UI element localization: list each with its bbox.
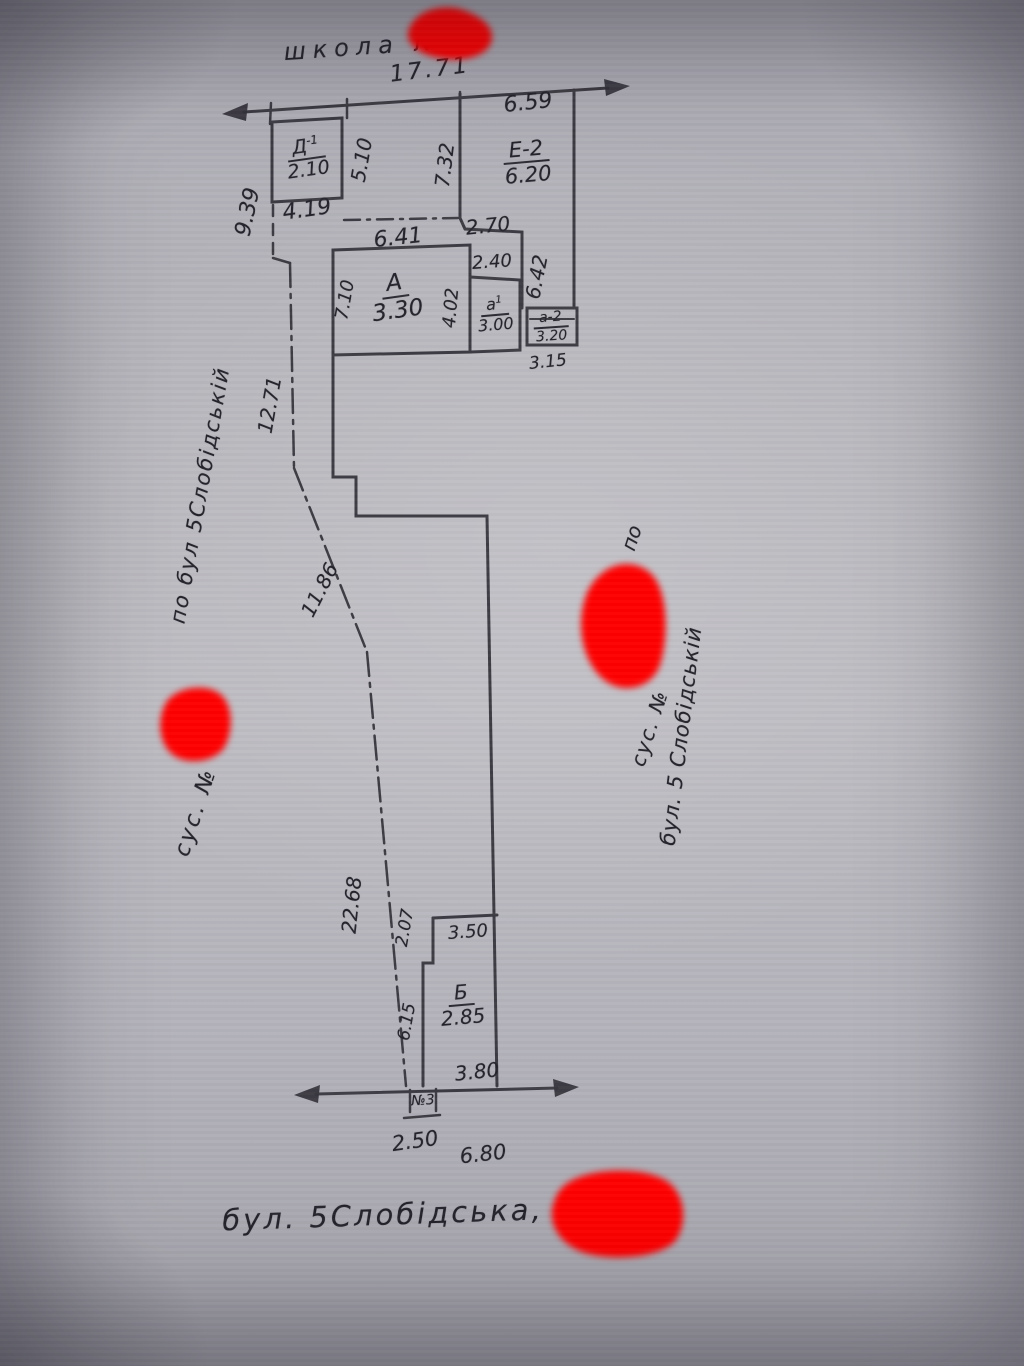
redaction-blob-house-number (552, 1171, 683, 1258)
scanned-plan-page: школа № 17.71 6.59 Д-1 2.10 5.10 4.19 9.… (0, 0, 1024, 1366)
redaction-blob-school (408, 7, 492, 59)
redaction-blob-right-neighbor (581, 564, 665, 688)
redaction-blob-left-neighbor (160, 688, 230, 761)
redaction-layer (0, 0, 1024, 1366)
